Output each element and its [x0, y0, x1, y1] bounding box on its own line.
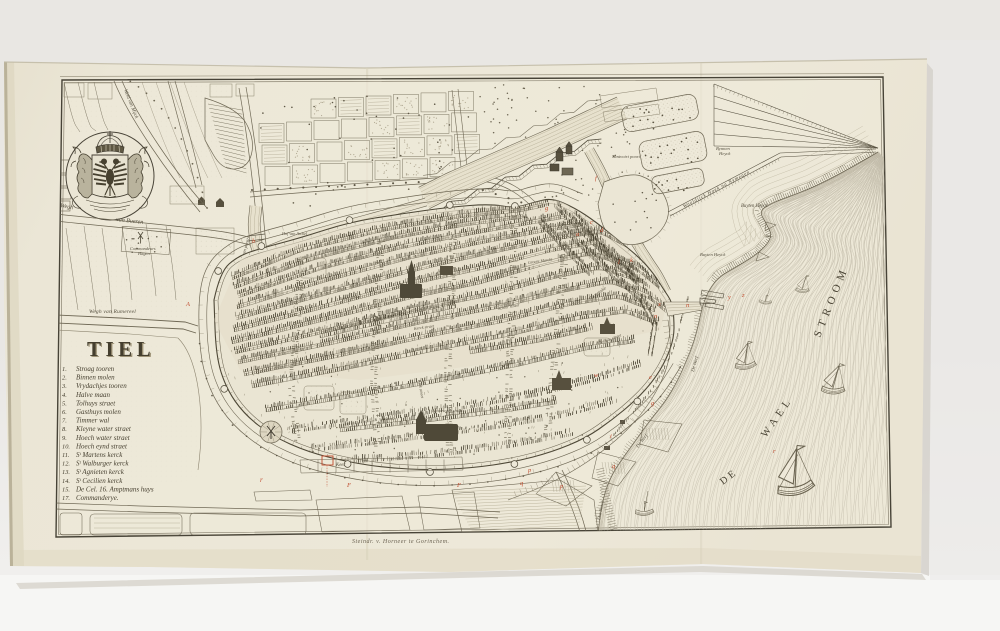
svg-text:Hoech water straet: Hoech water straet	[75, 434, 131, 442]
svg-text:Keer: Keer	[335, 463, 345, 468]
svg-text:Binnen molen: Binnen molen	[76, 374, 115, 382]
svg-text:c: c	[590, 219, 593, 226]
svg-text:7.: 7.	[62, 418, 67, 425]
svg-text:Schoole: Schoole	[382, 416, 395, 421]
svg-text:Heyck: Heyck	[718, 151, 731, 156]
svg-text:9.: 9.	[62, 435, 67, 442]
svg-text:Buyten Heyck: Buyten Heyck	[700, 252, 726, 257]
svg-text:Sᵗ Agnieten kerck: Sᵗ Agnieten kerck	[76, 468, 125, 476]
svg-text:k: k	[630, 257, 633, 264]
svg-text:TIEL: TIEL	[87, 337, 155, 361]
svg-text:Tolhuys straet: Tolhuys straet	[76, 399, 116, 407]
svg-text:Hoech eynd straet: Hoech eynd straet	[75, 442, 128, 450]
svg-text:Sᵗ Martens kerck: Sᵗ Martens kerck	[76, 451, 123, 459]
svg-text:8.: 8.	[62, 426, 67, 433]
svg-text:n: n	[654, 313, 657, 320]
svg-text:Hof van Arckel: Hof van Arckel	[281, 231, 308, 236]
svg-text:i: i	[610, 433, 612, 440]
svg-text:l: l	[618, 259, 620, 266]
svg-text:x: x	[657, 301, 661, 308]
svg-text:Steindr. v. Horneer te Gorinch: Steindr. v. Horneer te Gorinchem.	[352, 539, 450, 545]
svg-text:Halve maan: Halve maan	[75, 391, 111, 399]
svg-text:z: z	[741, 292, 745, 299]
svg-text:e: e	[649, 374, 652, 381]
svg-text:4.: 4.	[62, 392, 67, 399]
svg-text:Wegh van Rumereel: Wegh van Rumereel	[89, 309, 136, 315]
svg-text:w: w	[594, 372, 599, 379]
svg-text:10.: 10.	[62, 443, 70, 450]
svg-text:a: a	[576, 231, 579, 238]
svg-text:12.: 12.	[62, 461, 70, 468]
svg-text:Sᵗ Walburger kerck: Sᵗ Walburger kerck	[76, 460, 129, 468]
svg-text:13.: 13.	[62, 469, 70, 476]
svg-text:Gasthuys molen: Gasthuys molen	[76, 408, 121, 416]
svg-text:Kleyne water straet: Kleyne water straet	[75, 425, 132, 433]
svg-text:6.: 6.	[62, 409, 67, 416]
svg-text:Buyten Heyck: Buyten Heyck	[741, 204, 768, 209]
svg-text:r: r	[260, 476, 263, 484]
svg-text:Stroag tooren: Stroag tooren	[76, 365, 115, 373]
svg-text:A: A	[185, 301, 190, 308]
svg-text:Commanderye.: Commanderye.	[76, 494, 119, 502]
svg-text:17.: 17.	[62, 495, 70, 502]
svg-text:Santvoirt poort: Santvoirt poort	[612, 154, 641, 159]
svg-text:1.: 1.	[62, 366, 67, 373]
svg-text:14.: 14.	[62, 478, 70, 485]
svg-text:Timmer wal: Timmer wal	[76, 417, 109, 425]
svg-text:Achterwegh straet: Achterwegh straet	[431, 408, 463, 413]
svg-text:3.: 3.	[61, 383, 67, 390]
svg-text:2.: 2.	[62, 375, 67, 382]
svg-text:5.: 5.	[62, 400, 67, 407]
svg-text:Sᵗ Cecilien kerck: Sᵗ Cecilien kerck	[76, 477, 123, 485]
svg-text:15.: 15.	[62, 486, 70, 493]
svg-text:11.: 11.	[62, 452, 70, 459]
svg-text:n: n	[686, 302, 689, 309]
svg-text:De Cel. 16. Amptmans huys: De Cel. 16. Amptmans huys	[75, 485, 154, 493]
svg-text:Vrydachjes tooren: Vrydachjes tooren	[76, 382, 127, 390]
svg-text:y: y	[727, 294, 731, 301]
svg-text:Hagen: Hagen	[137, 251, 151, 256]
